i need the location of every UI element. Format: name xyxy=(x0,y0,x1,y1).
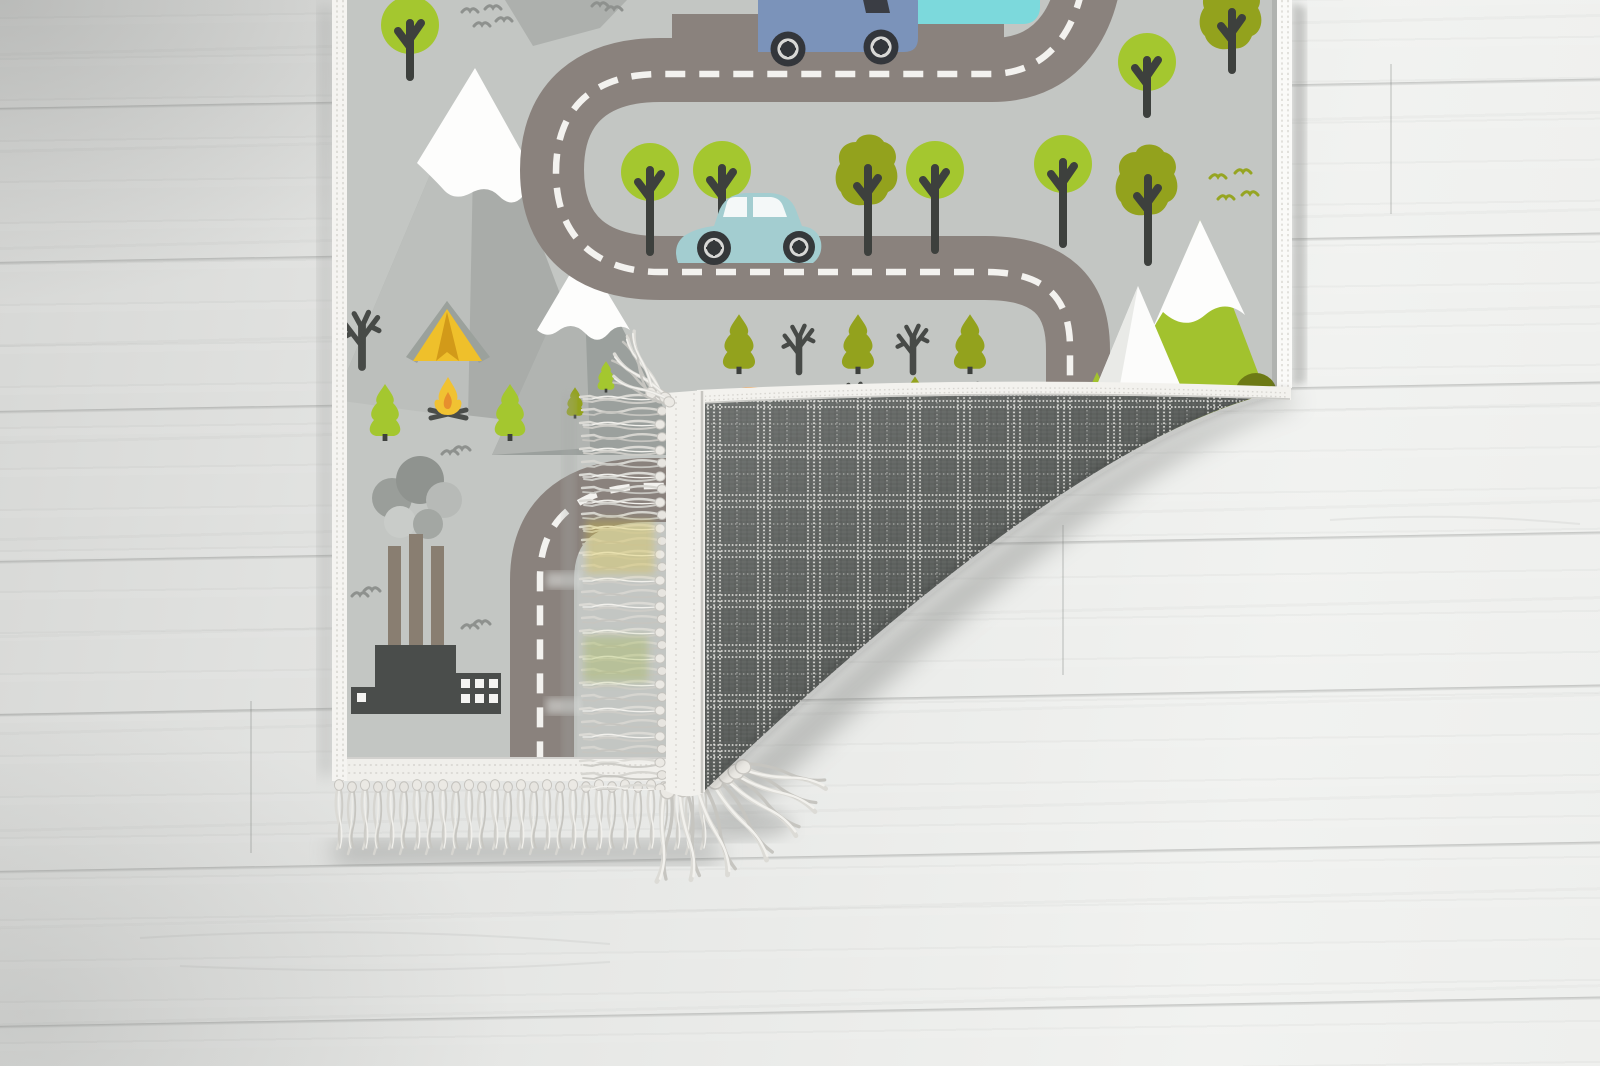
fringe-strip-folded-edge xyxy=(572,330,676,790)
rug-photo xyxy=(0,0,1600,1066)
rug-right-selvage xyxy=(1272,0,1293,392)
flap-edge-binding xyxy=(666,390,705,796)
van-windshield xyxy=(862,0,890,13)
rug-left-selvage xyxy=(332,0,347,781)
factory-chimneys xyxy=(388,534,444,648)
product-photo-scene xyxy=(0,0,1600,1066)
